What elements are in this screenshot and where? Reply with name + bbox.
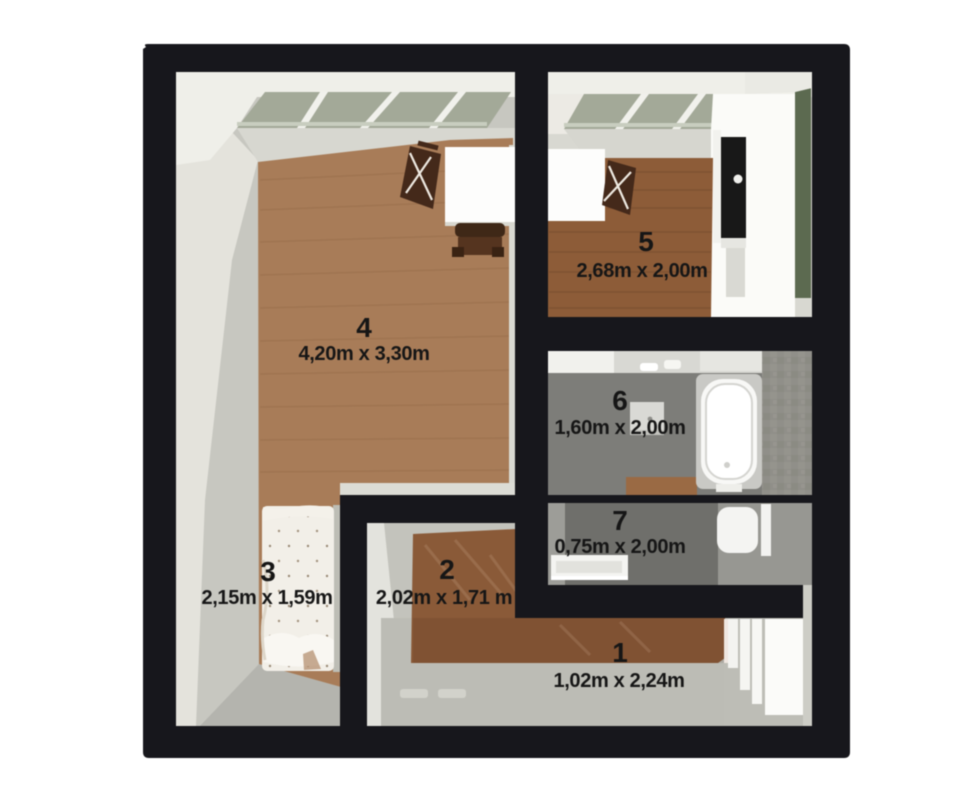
svg-text:1,60m x 2,00m: 1,60m x 2,00m — [554, 417, 685, 439]
svg-text:2,15m x 1,59m: 2,15m x 1,59m — [201, 587, 332, 609]
svg-text:2: 2 — [439, 554, 455, 585]
svg-text:2,68m x 2,00m: 2,68m x 2,00m — [576, 260, 707, 282]
svg-text:0,75m x 2,00m: 0,75m x 2,00m — [554, 536, 685, 558]
svg-text:5: 5 — [638, 226, 654, 257]
svg-text:4: 4 — [356, 312, 372, 343]
svg-text:7: 7 — [612, 505, 628, 536]
svg-text:3: 3 — [260, 556, 276, 587]
svg-text:1: 1 — [612, 637, 628, 668]
svg-text:4,20m x 3,30m: 4,20m x 3,30m — [298, 343, 429, 365]
svg-text:6: 6 — [612, 385, 628, 416]
svg-text:2,02m x 1,71 m: 2,02m x 1,71 m — [376, 587, 512, 609]
svg-text:1,02m x 2,24m: 1,02m x 2,24m — [553, 670, 684, 692]
